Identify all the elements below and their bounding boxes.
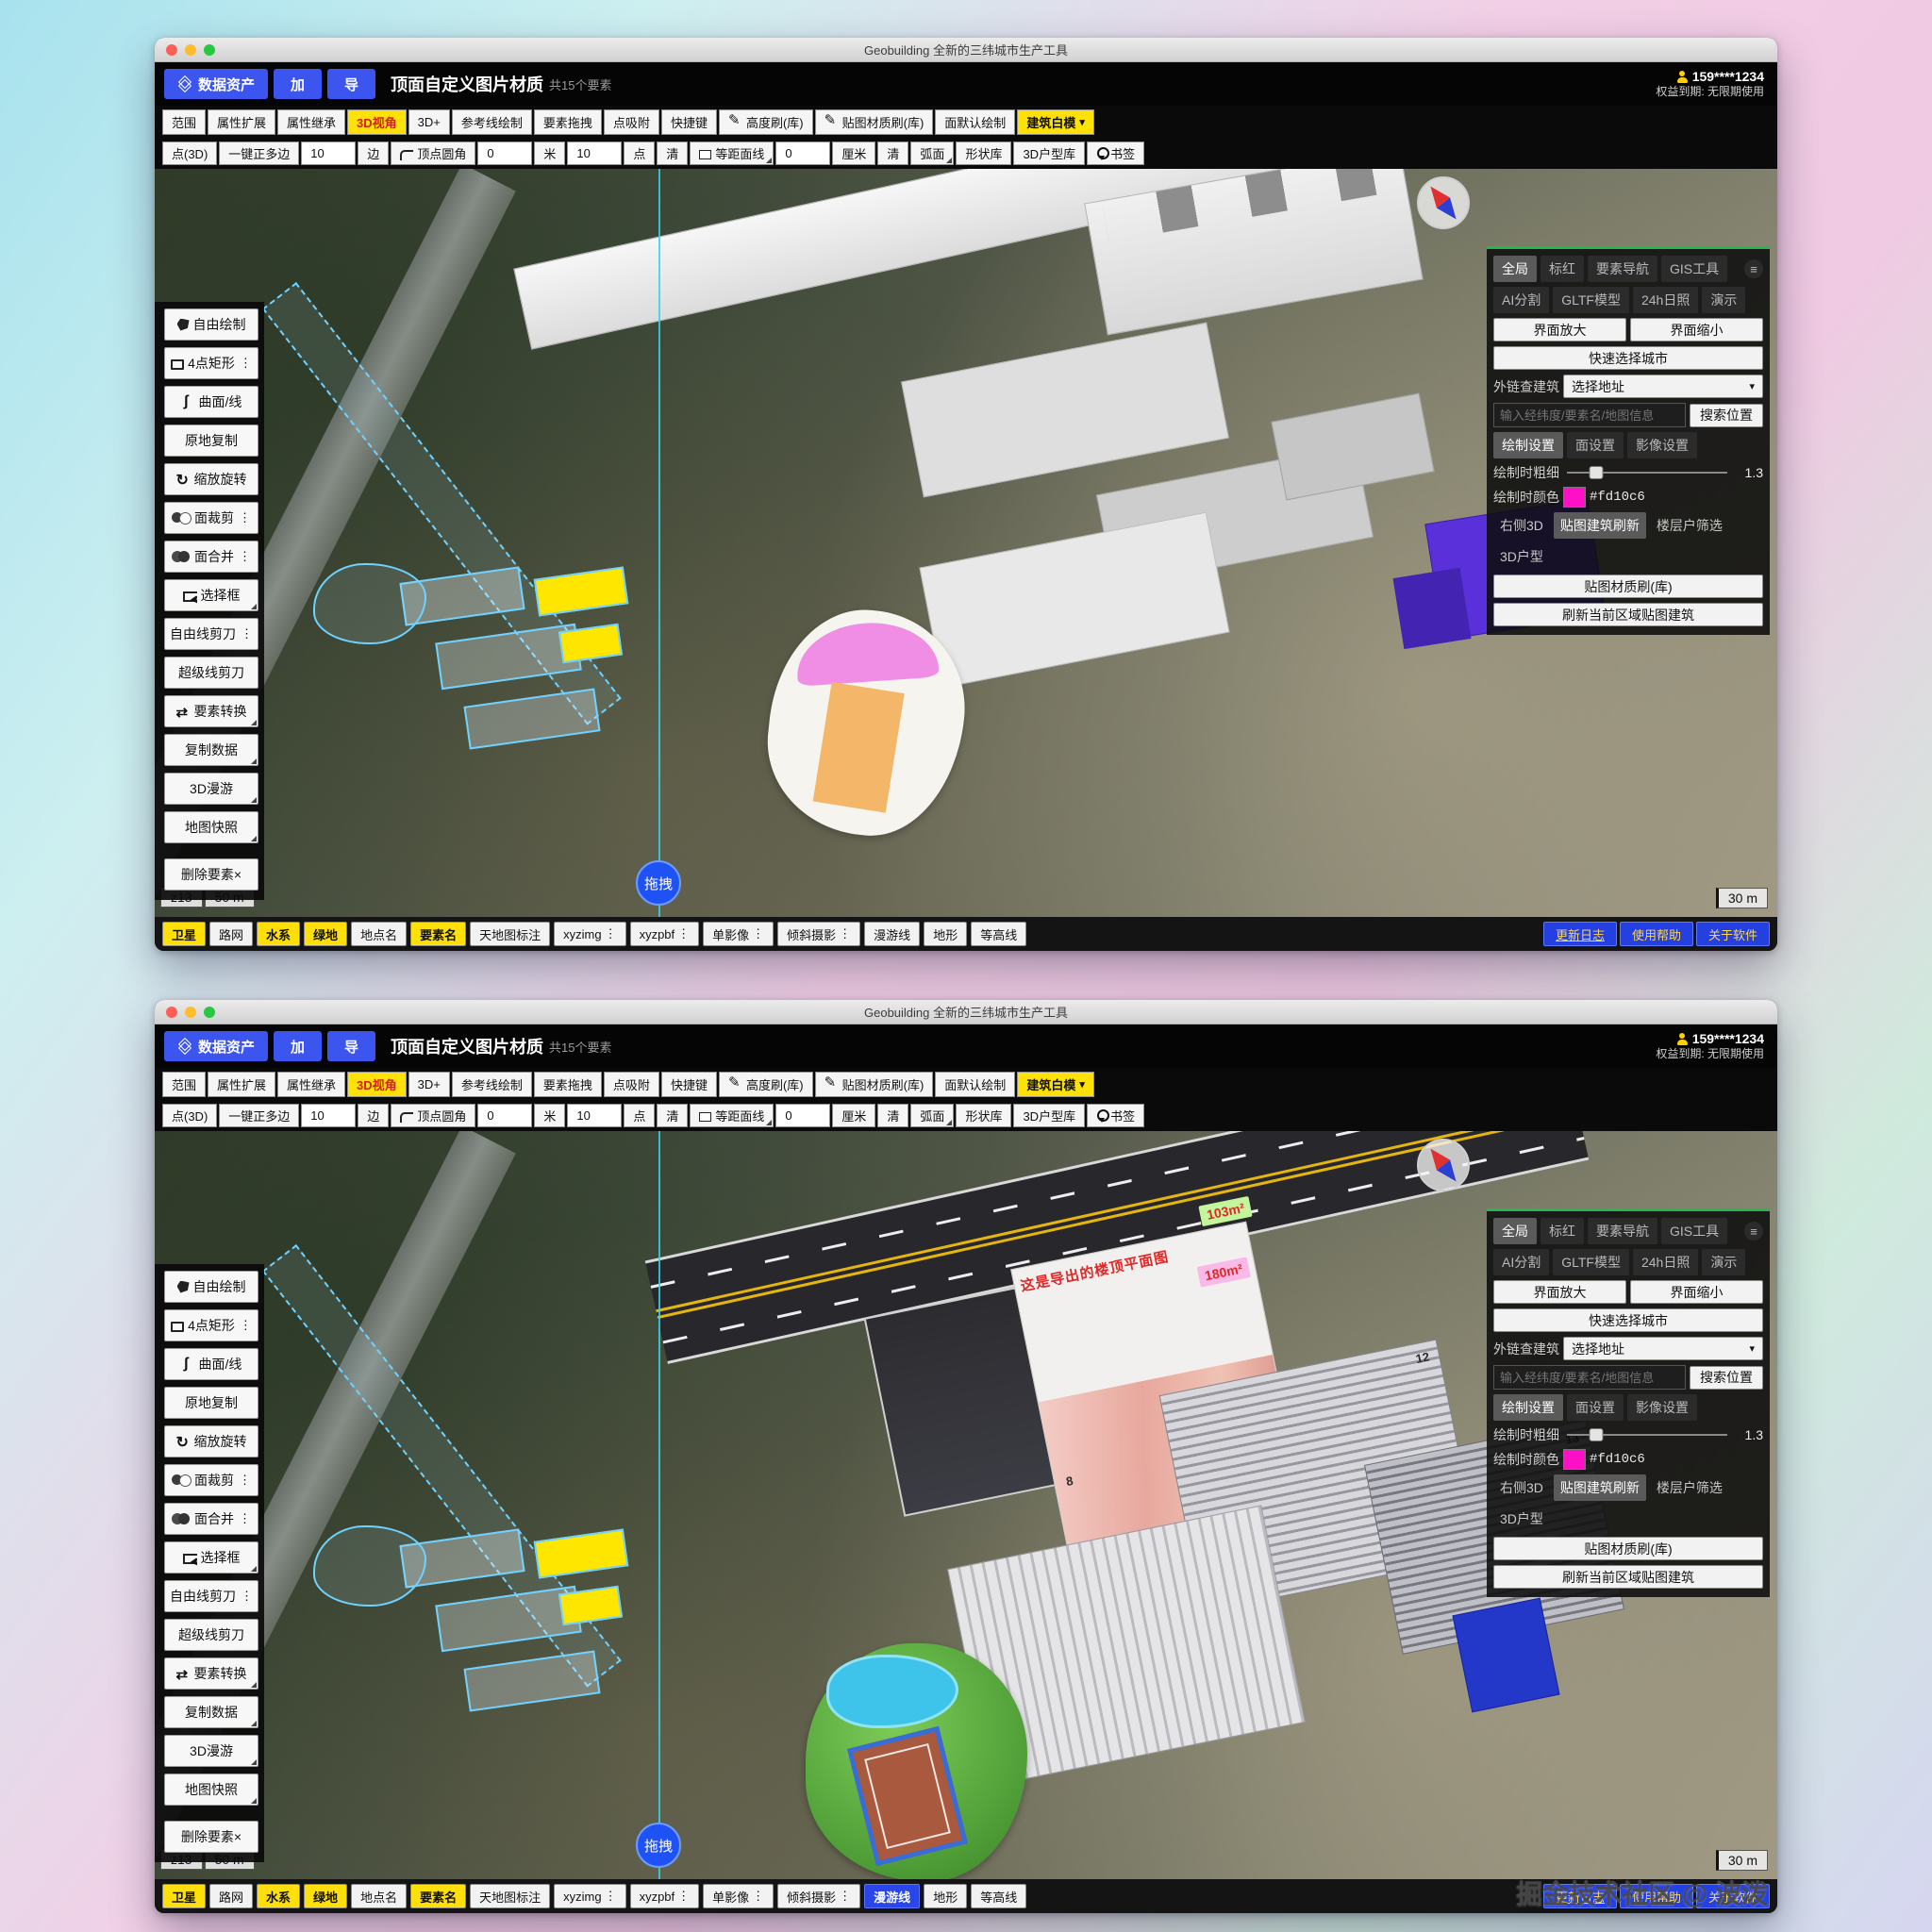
draw-color-swatch[interactable] xyxy=(1563,487,1586,508)
window-title: Geobuilding 全新的三纬城市生产工具 xyxy=(155,1003,1777,1021)
settings-tab[interactable]: 绘制设置 xyxy=(1493,1394,1563,1421)
sidebar-tool-button[interactable]: 地图快照 xyxy=(164,1774,258,1806)
user-phone: 159****1234 xyxy=(1692,69,1764,86)
mode-button[interactable]: 属性继承 xyxy=(277,109,345,135)
sidebar-tool-button[interactable]: 超级线剪刀 xyxy=(164,657,258,689)
panel-tab[interactable]: 要素导航 xyxy=(1588,1218,1657,1244)
sidebar-tool-button[interactable]: 地图快照 xyxy=(164,811,258,843)
panel-mode-button[interactable]: 右侧3D xyxy=(1493,512,1550,539)
draw-tool-button[interactable]: 书签 xyxy=(1087,142,1144,165)
user-icon xyxy=(1676,71,1689,83)
corner-flyout-icon xyxy=(251,1721,257,1726)
mode-button[interactable]: 3D+ xyxy=(408,1072,450,1097)
sidebar-tool-button[interactable]: 选择框 xyxy=(164,1541,258,1574)
mode-button[interactable]: 参考线绘制 xyxy=(452,109,532,135)
right-panel: 全局标红要素导航GIS工具 ≡ AI分割GLTF模型24h日照演示 界面放大 界… xyxy=(1487,246,1770,635)
coordinate-search-input[interactable] xyxy=(1493,403,1686,427)
user-icon xyxy=(1676,1033,1689,1045)
building-footprint-highlight[interactable] xyxy=(534,567,629,617)
mode-button[interactable]: 参考线绘制 xyxy=(452,1072,532,1097)
pink-roof-shape xyxy=(794,618,940,686)
settings-tab[interactable]: 绘制设置 xyxy=(1493,432,1563,458)
more-options-icon: ⋮ xyxy=(241,626,253,641)
more-options-icon: ⋮ xyxy=(239,510,251,525)
layer-toggle-button[interactable]: 要素名 xyxy=(410,922,466,946)
rect-icon xyxy=(171,359,184,370)
layer-toggle-button[interactable]: xyzimg ⋮ xyxy=(554,922,625,946)
more-options-icon: ⋮ xyxy=(605,926,617,941)
sidebar-tool-button[interactable]: 3D漫游 xyxy=(164,1735,258,1767)
draw-color-label: 绘制时颜色 xyxy=(1493,488,1559,507)
data-asset-button[interactable]: 数据资产 xyxy=(164,1031,268,1061)
panel-menu-icon[interactable]: ≡ xyxy=(1744,259,1763,278)
mode-button[interactable]: 快捷键 xyxy=(661,1072,717,1097)
corner-flyout-icon xyxy=(766,1120,772,1125)
element-count: 共15个要素 xyxy=(549,1038,611,1056)
draw-toolbar: 点(3D) 一键正多边 10 边 xyxy=(155,1100,1777,1131)
layer-toggle-button[interactable]: 地形 xyxy=(924,922,967,946)
sidebar-tool-button[interactable]: 复制数据 xyxy=(164,734,258,766)
pin-icon xyxy=(1096,1109,1107,1123)
area-outline[interactable] xyxy=(313,1525,426,1607)
panel-tab[interactable]: 标红 xyxy=(1541,1218,1584,1244)
textured-slab-model xyxy=(947,1505,1306,1786)
license-expiry: 权益到期: 无限期使用 xyxy=(1656,85,1764,99)
corner-flyout-icon xyxy=(251,1798,257,1804)
export-button[interactable]: 导 xyxy=(327,69,375,99)
split-view-divider[interactable] xyxy=(658,1131,660,1879)
panel-tab[interactable]: GIS工具 xyxy=(1661,1218,1727,1244)
layer-toggle-button[interactable]: 天地图标注 xyxy=(470,922,550,946)
layer-toggle-button[interactable]: 等高线 xyxy=(971,1884,1026,1908)
sidebar-tool-button[interactable]: 面合并 ⋮ xyxy=(164,1503,258,1535)
draw-tool-button[interactable]: 10 xyxy=(567,1104,622,1127)
layer-toggle-button[interactable]: 地点名 xyxy=(351,922,407,946)
clip-icon xyxy=(172,1474,191,1487)
panel-mode-button[interactable]: 楼层户筛选 xyxy=(1650,1474,1729,1501)
layer-toggle-button[interactable]: 水系 xyxy=(257,922,300,946)
panel-mode-button[interactable]: 右侧3D xyxy=(1493,1474,1550,1501)
mode-button[interactable]: 高度刷(库) xyxy=(719,1072,813,1097)
draw-tool-button[interactable]: 3D户型库 xyxy=(1013,1104,1085,1127)
select-icon xyxy=(183,591,197,602)
quick-city-button[interactable]: 快速选择城市 xyxy=(1493,1308,1763,1332)
more-options-icon: ⋮ xyxy=(239,549,251,564)
mode-button[interactable]: 3D视角 xyxy=(347,1072,407,1097)
draw-tool-button[interactable]: 顶点圆角 xyxy=(391,142,475,165)
draw-tool-button[interactable]: 3D户型库 xyxy=(1013,142,1085,165)
add-button[interactable]: 加 xyxy=(274,69,322,99)
building-model xyxy=(901,323,1229,498)
pentagon-icon xyxy=(177,319,190,331)
area-outline[interactable] xyxy=(313,563,426,644)
draw-tool-button[interactable]: 形状库 xyxy=(956,1104,1011,1127)
stroke-width-value: 1.3 xyxy=(1735,465,1763,480)
panel-mode-button[interactable]: 贴图建筑刷新 xyxy=(1554,512,1646,539)
draw-tool-button[interactable]: 清 xyxy=(877,142,908,165)
draw-color-swatch[interactable] xyxy=(1563,1449,1586,1470)
draw-tool-button[interactable]: 10 xyxy=(567,142,622,165)
corner-flyout-icon xyxy=(251,1566,257,1572)
draw-tool-button[interactable]: 厘米 xyxy=(832,1104,875,1127)
more-options-icon: ⋮ xyxy=(839,1889,851,1904)
pencil-icon xyxy=(728,1077,742,1091)
footer-link-button[interactable]: 关于软件 xyxy=(1696,922,1770,946)
more-options-icon: ⋮ xyxy=(677,1889,690,1904)
layer-toggle-button[interactable]: 倾斜摄影 ⋮ xyxy=(777,1884,860,1908)
ui-zoom-out-button[interactable]: 界面缩小 xyxy=(1630,1280,1763,1304)
draw-tool-button[interactable]: 清 xyxy=(877,1104,908,1127)
mode-button[interactable]: 高度刷(库) xyxy=(719,109,813,135)
sidebar-tool-button[interactable]: 原地复制 xyxy=(164,1387,258,1419)
draw-color-hex: #fd10c6 xyxy=(1590,490,1645,505)
layers-icon xyxy=(177,77,192,91)
corner-flyout-icon xyxy=(251,1682,257,1688)
mode-button[interactable]: 属性扩展 xyxy=(208,1072,275,1097)
draw-tool-button[interactable]: 点 xyxy=(624,1104,655,1127)
scale-indicator: 30 m xyxy=(1716,888,1768,908)
map-scale-right: 30 m xyxy=(1716,891,1768,908)
search-location-button[interactable]: 搜索位置 xyxy=(1690,1366,1763,1390)
layer-toggle-button[interactable]: 路网 xyxy=(209,1884,253,1908)
more-options-icon: ⋮ xyxy=(239,1511,251,1526)
settings-tab[interactable]: 面设置 xyxy=(1567,432,1624,458)
sidebar-tool-button[interactable]: 自由绘制 xyxy=(164,308,258,341)
layer-toggle-button[interactable]: 卫星 xyxy=(162,1884,206,1908)
data-asset-button[interactable]: 数据资产 xyxy=(164,69,268,99)
mode-button[interactable]: 建筑白模 ▾ xyxy=(1017,1072,1094,1097)
sidebar-tool-button[interactable]: 原地复制 xyxy=(164,425,258,457)
draw-tool-button[interactable]: 等距面线 xyxy=(690,142,774,165)
corner-flyout-icon xyxy=(251,758,257,764)
panel-tab[interactable]: 演示 xyxy=(1702,287,1745,313)
layer-toggle-button[interactable]: 单影像 ⋮ xyxy=(703,1884,774,1908)
sidebar-tool-button[interactable]: 曲面/线 xyxy=(164,1348,258,1380)
draw-tool-button[interactable]: 米 xyxy=(534,142,565,165)
chevron-down-icon: ▾ xyxy=(1749,1342,1755,1355)
compass-icon[interactable] xyxy=(1417,176,1470,229)
mode-button[interactable]: 要素拖拽 xyxy=(534,109,602,135)
document-title: 顶面自定义图片材质 xyxy=(391,72,543,96)
footer-link-button[interactable]: 使用帮助 xyxy=(1620,922,1693,946)
mode-button[interactable]: 范围 xyxy=(162,1072,206,1097)
scale-indicator: 30 m xyxy=(1716,1850,1768,1871)
split-view-divider[interactable] xyxy=(658,169,660,917)
panel-tab[interactable]: AI分割 xyxy=(1493,1249,1549,1275)
mode-button[interactable]: 属性继承 xyxy=(277,1072,345,1097)
building-model xyxy=(1096,444,1374,588)
sidebar-tool-button[interactable]: 面裁剪 ⋮ xyxy=(164,502,258,534)
draw-toolbar: 点(3D) 一键正多边 10 边 xyxy=(155,138,1777,169)
sidebar-tool-button[interactable]: 要素转换 xyxy=(164,695,258,727)
map-scale-right: 30 m xyxy=(1716,1853,1768,1870)
sidebar-tool-button[interactable]: 选择框 xyxy=(164,579,258,611)
layer-toggle-button[interactable]: xyzpbf ⋮ xyxy=(630,922,700,946)
drag-handle-button[interactable]: 拖拽 xyxy=(636,860,681,906)
corner-flyout-icon xyxy=(251,836,257,841)
ad-building-model: 这是导出的楼顶平面图 180m² 8 xyxy=(1010,1222,1304,1552)
floorplan-3d-button[interactable]: 3D户型 xyxy=(1493,1506,1550,1532)
mode-toolbar: 范围 属性扩展 属性继承 3D视角 3D+ xyxy=(155,106,1777,138)
panel-tab[interactable]: 全局 xyxy=(1493,1218,1537,1244)
panel-tab[interactable]: 标红 xyxy=(1541,256,1584,282)
building-footprint-highlight[interactable] xyxy=(558,1586,623,1626)
panel-tab[interactable]: 全局 xyxy=(1493,256,1537,282)
layer-toggle-button[interactable]: 绿地 xyxy=(304,922,347,946)
draw-tool-button[interactable]: 点 xyxy=(624,142,655,165)
ui-zoom-in-button[interactable]: 界面放大 xyxy=(1493,1280,1626,1304)
panel-tab[interactable]: 演示 xyxy=(1702,1249,1745,1275)
clip-icon xyxy=(172,511,191,525)
draw-tool-button[interactable]: 0 xyxy=(775,1104,830,1127)
sidebar-tool-button[interactable]: 缩放旋转 xyxy=(164,1425,258,1457)
window-titlebar: Geobuilding 全新的三纬城市生产工具 xyxy=(155,1000,1777,1024)
sidebar-tool-button[interactable]: 要素转换 xyxy=(164,1657,258,1690)
corner-flyout-icon xyxy=(251,604,257,609)
address-select[interactable]: 选择地址 ▾ xyxy=(1563,375,1763,398)
draw-tool-button[interactable]: 一键正多边 xyxy=(219,1104,299,1127)
draw-tool-button[interactable]: 顶点圆角 xyxy=(391,1104,475,1127)
draw-tool-button[interactable]: 一键正多边 xyxy=(219,142,299,165)
mode-button[interactable]: 建筑白模 ▾ xyxy=(1017,109,1094,135)
purple-building-model xyxy=(1392,568,1471,649)
layer-toggle-button[interactable]: 等高线 xyxy=(971,922,1026,946)
floorplan-3d-button[interactable]: 3D户型 xyxy=(1493,543,1550,570)
app-window: Geobuilding 全新的三纬城市生产工具 数据资产 加 导 顶面自定义图片… xyxy=(155,38,1777,951)
settings-tab[interactable]: 面设置 xyxy=(1567,1394,1624,1421)
coordinate-search-input[interactable] xyxy=(1493,1365,1686,1390)
map-stage: z13 50 m 30 m 拖拽 自由绘制 xyxy=(155,169,1777,917)
pentagon-icon xyxy=(177,1281,190,1293)
floor-number: 8 xyxy=(1065,1474,1074,1489)
slider-handle[interactable] xyxy=(1589,1428,1603,1441)
address-select[interactable]: 选择地址 ▾ xyxy=(1563,1337,1763,1360)
orange-roof-shape xyxy=(813,682,905,813)
settings-tab[interactable]: 影像设置 xyxy=(1627,1394,1697,1421)
quick-city-button[interactable]: 快速选择城市 xyxy=(1493,346,1763,370)
blue-building-model xyxy=(1452,1598,1559,1713)
user-phone: 159****1234 xyxy=(1692,1031,1764,1048)
draw-tool-button[interactable]: 10 xyxy=(301,142,356,165)
draw-tool-button[interactable]: 0 xyxy=(477,142,532,165)
drag-handle-button[interactable]: 拖拽 xyxy=(636,1823,681,1868)
sidebar-tool-button[interactable]: 4点矩形 ⋮ xyxy=(164,347,258,379)
draw-tool-button[interactable]: 弧面 xyxy=(910,1104,954,1127)
more-options-icon: ⋮ xyxy=(605,1889,617,1904)
draw-tool-button[interactable]: 清 xyxy=(657,142,688,165)
layer-toggle-button[interactable]: 卫星 xyxy=(162,922,206,946)
draw-tool-button[interactable]: 厘米 xyxy=(832,142,875,165)
draw-tool-button[interactable]: 清 xyxy=(657,1104,688,1127)
sidebar-tool-button[interactable]: 3D漫游 xyxy=(164,773,258,805)
basketball-court-shape xyxy=(847,1726,968,1866)
ui-zoom-out-button[interactable]: 界面缩小 xyxy=(1630,318,1763,341)
sidebar-tool-button[interactable]: 缩放旋转 xyxy=(164,463,258,495)
building-model xyxy=(919,512,1229,689)
footer-link-button[interactable]: 更新日志 xyxy=(1543,1884,1617,1908)
stroke-width-slider[interactable] xyxy=(1567,1434,1727,1436)
license-expiry: 权益到期: 无限期使用 xyxy=(1656,1047,1764,1061)
select-icon xyxy=(183,1554,197,1564)
panel-tab[interactable]: 要素导航 xyxy=(1588,256,1657,282)
layer-toggle-button[interactable]: xyzimg ⋮ xyxy=(554,1884,625,1908)
pencil-icon xyxy=(824,1077,839,1091)
panel-tab[interactable]: 24h日照 xyxy=(1633,287,1698,313)
stroke-width-slider[interactable] xyxy=(1567,472,1727,474)
sidebar-tool-button[interactable]: 曲面/线 xyxy=(164,386,258,418)
draw-tool-button[interactable]: 点(3D) xyxy=(162,1104,217,1127)
draw-tool-button[interactable]: 边 xyxy=(358,142,389,165)
app-window: Geobuilding 全新的三纬城市生产工具 数据资产 加 导 顶面自定义图片… xyxy=(155,1000,1777,1913)
chevron-down-icon: ▾ xyxy=(1749,380,1755,392)
add-button[interactable]: 加 xyxy=(274,1031,322,1061)
draw-tool-button[interactable]: 米 xyxy=(534,1104,565,1127)
mode-button[interactable]: 贴图材质刷(库) xyxy=(815,109,934,135)
user-info[interactable]: 159****1234 权益到期: 无限期使用 xyxy=(1656,1031,1768,1062)
dark-building-model xyxy=(864,1261,1182,1516)
chevron-down-icon: ▾ xyxy=(1079,1078,1085,1091)
more-options-icon: ⋮ xyxy=(241,1589,253,1604)
texture-brush-library-button[interactable]: 贴图材质刷(库) xyxy=(1493,575,1763,598)
draw-color-label: 绘制时颜色 xyxy=(1493,1450,1559,1469)
panel-tab[interactable]: 24h日照 xyxy=(1633,1249,1698,1275)
layer-toggle-button[interactable]: 天地图标注 xyxy=(470,1884,550,1908)
building-footprint[interactable] xyxy=(463,688,600,749)
panel-mode-button[interactable]: 楼层户筛选 xyxy=(1650,512,1729,539)
sidebar-tool-button[interactable]: 面裁剪 ⋮ xyxy=(164,1464,258,1496)
search-location-button[interactable]: 搜索位置 xyxy=(1690,404,1763,427)
more-options-icon: ⋮ xyxy=(752,926,764,941)
textured-tower-model: 12 xyxy=(1159,1339,1481,1612)
layer-toggle-button[interactable]: 水系 xyxy=(257,1884,300,1908)
draw-tool-button[interactable]: 等距面线 xyxy=(690,1104,774,1127)
desktop-background: Geobuilding 全新的三纬城市生产工具 数据资产 加 导 顶面自定义图片… xyxy=(0,0,1932,1932)
layer-toggle-button[interactable]: 漫游线 xyxy=(864,922,920,946)
building-footprint[interactable] xyxy=(463,1650,600,1711)
layer-toggle-button[interactable]: 倾斜摄影 ⋮ xyxy=(777,922,860,946)
drawn-area-shape xyxy=(758,601,974,844)
mode-button[interactable]: 要素拖拽 xyxy=(534,1072,602,1097)
mode-button[interactable]: 点吸附 xyxy=(604,1072,659,1097)
more-options-icon: ⋮ xyxy=(752,1889,764,1904)
corner-flyout-icon xyxy=(766,158,772,163)
footer-link-button[interactable]: 关于软件 xyxy=(1696,1884,1770,1908)
mode-button[interactable]: 面默认绘制 xyxy=(935,109,1015,135)
pool-shape xyxy=(826,1655,958,1728)
mode-button[interactable]: 3D+ xyxy=(408,109,450,135)
mode-button[interactable]: 3D视角 xyxy=(347,109,407,135)
panel-tab[interactable]: GLTF模型 xyxy=(1553,287,1629,313)
draw-tool-button[interactable]: 10 xyxy=(301,1104,356,1127)
panel-tab[interactable]: AI分割 xyxy=(1493,287,1549,313)
layer-toggle-button[interactable]: 路网 xyxy=(209,922,253,946)
mode-button[interactable]: 属性扩展 xyxy=(208,109,275,135)
footer-link-button[interactable]: 更新日志 xyxy=(1543,922,1617,946)
more-options-icon: ⋮ xyxy=(240,356,252,371)
main-toolbar: 数据资产 加 导 顶面自定义图片材质 共15个要素 159****1234 权益… xyxy=(155,62,1777,106)
link-query-label: 外链查建筑 xyxy=(1493,1340,1559,1358)
panel-tab[interactable]: GLTF模型 xyxy=(1553,1249,1629,1275)
sidebar-tool-button[interactable]: 自由绘制 xyxy=(164,1271,258,1303)
delete-elements-button[interactable]: 删除要素× xyxy=(164,1821,258,1853)
panel-tab[interactable]: GIS工具 xyxy=(1661,256,1727,282)
draw-tool-button[interactable]: 0 xyxy=(477,1104,532,1127)
refresh-area-textures-button[interactable]: 刷新当前区域贴图建筑 xyxy=(1493,1565,1763,1589)
draw-color-hex: #fd10c6 xyxy=(1590,1452,1645,1467)
layer-toggle-button[interactable]: 要素名 xyxy=(410,1884,466,1908)
draw-tool-button[interactable]: 书签 xyxy=(1087,1104,1144,1127)
draw-tool-button[interactable]: 点(3D) xyxy=(162,142,217,165)
settings-tab[interactable]: 影像设置 xyxy=(1627,432,1697,458)
mode-button[interactable]: 面默认绘制 xyxy=(935,1072,1015,1097)
window-titlebar: Geobuilding 全新的三纬城市生产工具 xyxy=(155,38,1777,62)
sidebar-tool-button[interactable]: 自由线剪刀 ⋮ xyxy=(164,1580,258,1612)
sidebar-tool-button[interactable]: 面合并 ⋮ xyxy=(164,541,258,573)
layer-toggle-button[interactable]: 漫游线 xyxy=(864,1884,920,1908)
corner-flyout-icon xyxy=(946,158,952,163)
user-info[interactable]: 159****1234 权益到期: 无限期使用 xyxy=(1656,69,1768,100)
window-title: Geobuilding 全新的三纬城市生产工具 xyxy=(155,41,1777,58)
tool-sidebar: 自由绘制 4点矩形 ⋮ 曲面/线 xyxy=(155,1264,264,1862)
sidebar-tool-button[interactable]: 自由线剪刀 ⋮ xyxy=(164,618,258,650)
mode-button[interactable]: 点吸附 xyxy=(604,109,659,135)
link-query-label: 外链查建筑 xyxy=(1493,377,1559,396)
draw-tool-button[interactable]: 形状库 xyxy=(956,142,1011,165)
draw-tool-button[interactable]: 边 xyxy=(358,1104,389,1127)
corner-flyout-icon xyxy=(251,720,257,725)
roof-plan-banner: 这是导出的楼顶平面图 xyxy=(1019,1230,1247,1295)
panel-menu-icon[interactable]: ≡ xyxy=(1744,1222,1763,1241)
draw-tool-button[interactable]: 弧面 xyxy=(910,142,954,165)
mode-button[interactable]: 快捷键 xyxy=(661,109,717,135)
park-model xyxy=(806,1643,1027,1879)
layer-toggle-button[interactable]: 绿地 xyxy=(304,1884,347,1908)
draw-tool-button[interactable]: 0 xyxy=(775,142,830,165)
layer-toggle-button[interactable]: 地点名 xyxy=(351,1884,407,1908)
mode-button[interactable]: 贴图材质刷(库) xyxy=(815,1072,934,1097)
floor-number: 12 xyxy=(1414,1349,1430,1366)
sidebar-tool-button[interactable]: 复制数据 xyxy=(164,1696,258,1728)
export-button[interactable]: 导 xyxy=(327,1031,375,1061)
sidebar-tool-button[interactable]: 4点矩形 ⋮ xyxy=(164,1309,258,1341)
ad-facade-texture xyxy=(1039,1355,1303,1550)
layer-toggle-button[interactable]: 单影像 ⋮ xyxy=(703,922,774,946)
layer-toggle-button[interactable]: xyzpbf ⋮ xyxy=(630,1884,700,1908)
corner-flyout-icon xyxy=(251,1759,257,1765)
building-model xyxy=(1271,393,1434,501)
bottom-bar: 卫星 路网 水系 绿地 地点名 要素名 xyxy=(155,917,1777,951)
compass-icon[interactable] xyxy=(1417,1139,1470,1191)
element-count: 共15个要素 xyxy=(549,75,611,93)
tool-sidebar: 自由绘制 4点矩形 ⋮ 曲面/线 xyxy=(155,302,264,900)
building-footprint-highlight[interactable] xyxy=(534,1529,629,1579)
swap-icon xyxy=(176,705,191,718)
panel-mode-button[interactable]: 贴图建筑刷新 xyxy=(1554,1474,1646,1501)
sidebar-tool-button[interactable]: 超级线剪刀 xyxy=(164,1619,258,1651)
building-footprint-highlight[interactable] xyxy=(558,624,623,664)
more-options-icon: ⋮ xyxy=(677,926,690,941)
texture-brush-library-button[interactable]: 贴图材质刷(库) xyxy=(1493,1537,1763,1560)
mode-button[interactable]: 范围 xyxy=(162,109,206,135)
map-stage: 这是导出的楼顶平面图 180m² 8 103m² 12 13 xyxy=(155,1131,1777,1879)
ui-zoom-in-button[interactable]: 界面放大 xyxy=(1493,318,1626,341)
slider-handle[interactable] xyxy=(1589,466,1603,479)
delete-elements-button[interactable]: 删除要素× xyxy=(164,858,258,891)
square-icon xyxy=(699,1112,711,1122)
layer-toggle-button[interactable]: 地形 xyxy=(924,1884,967,1908)
footer-link-button[interactable]: 使用帮助 xyxy=(1620,1884,1693,1908)
refresh-area-textures-button[interactable]: 刷新当前区域贴图建筑 xyxy=(1493,603,1763,626)
